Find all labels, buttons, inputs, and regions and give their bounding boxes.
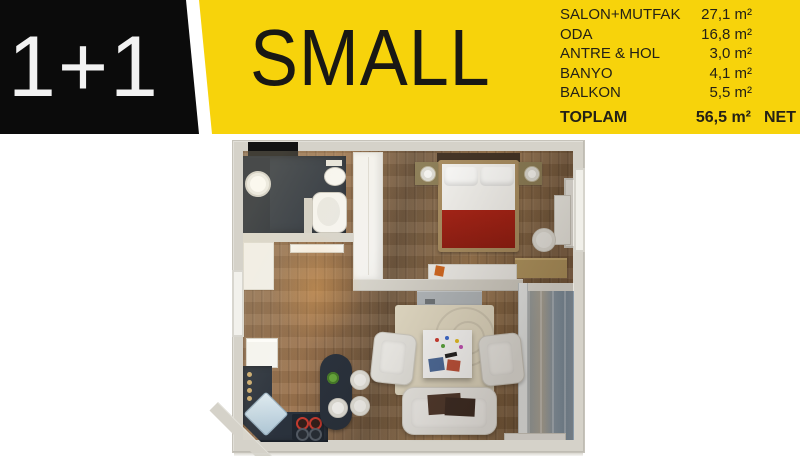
book	[434, 265, 445, 276]
armchair-cushion	[486, 341, 514, 376]
sofa-cushion	[445, 397, 476, 417]
area-value: 27,1 m²	[701, 5, 752, 25]
area-label: ANTRE & HOL	[560, 44, 660, 64]
coffee-table	[423, 330, 472, 378]
toilet-tank	[326, 160, 342, 166]
toilet	[324, 167, 346, 186]
area-label: SALON+MUTFAK	[560, 5, 680, 25]
area-label: ODA	[560, 25, 593, 45]
cabinet-knob	[247, 388, 252, 393]
armchair	[369, 331, 417, 386]
lamp	[524, 166, 540, 182]
area-label: BALKON	[560, 83, 621, 103]
tv-remote	[425, 299, 435, 304]
hall-cabinet	[243, 242, 274, 290]
flyer: 1+1 SMALL SALON+MUTFAK 27,1 m² ODA 16,8 …	[0, 0, 800, 456]
stove	[292, 414, 324, 440]
total-net-suffix: NET	[764, 108, 796, 128]
unit-type-box: 1+1	[0, 0, 210, 134]
armchair-cushion	[378, 340, 406, 375]
bed	[438, 160, 519, 252]
bedroom-side-window	[574, 168, 585, 252]
unit-type-label: 1+1	[0, 24, 160, 110]
bathtub-basin	[317, 197, 340, 226]
stove-burner	[309, 428, 322, 441]
bed-blanket	[442, 210, 515, 248]
bed-mattress	[442, 164, 515, 248]
stove-burner	[296, 428, 309, 441]
total-value: 56,5 m²	[696, 108, 751, 128]
area-table: SALON+MUTFAK 27,1 m² ODA 16,8 m² ANTRE &…	[560, 5, 752, 128]
decor-dot	[455, 339, 459, 343]
area-value: 3,0 m²	[709, 44, 752, 64]
bathroom-wall	[243, 233, 353, 242]
hall-window	[232, 270, 244, 337]
area-row: BANYO 4,1 m²	[560, 64, 752, 84]
area-value: 16,8 m²	[701, 25, 752, 45]
balcony-sill	[523, 283, 574, 291]
sofa	[402, 387, 497, 435]
fridge	[246, 338, 278, 368]
area-row: ANTRE & HOL 3,0 m²	[560, 44, 752, 64]
bathroom-door	[290, 244, 344, 253]
area-label: BANYO	[560, 64, 613, 84]
decor-dot	[435, 338, 439, 342]
decor-dot	[459, 345, 463, 349]
bathtub	[312, 192, 347, 233]
dresser	[515, 258, 567, 278]
cabinet-knob	[247, 380, 252, 385]
bedroom-living-wall	[353, 279, 523, 291]
pillow	[444, 167, 478, 186]
cabinet-knob	[247, 396, 252, 401]
remote-control	[445, 352, 458, 358]
wall-vent	[248, 142, 298, 156]
armchair	[477, 332, 525, 387]
total-row: TOPLAM 56,5 m² NET	[560, 108, 796, 128]
breakfast-bar	[320, 354, 352, 430]
decor-dot	[445, 336, 449, 340]
area-row: BALKON 5,5 m²	[560, 83, 752, 103]
magazine	[428, 357, 445, 372]
wardrobe	[353, 152, 383, 280]
balcony	[528, 291, 574, 440]
living-radiator	[504, 433, 566, 441]
plan-name: SMALL	[250, 18, 491, 98]
nightstand	[519, 162, 542, 185]
area-value: 5,5 m²	[709, 83, 752, 103]
total-label: TOPLAM	[560, 108, 627, 128]
bar-stool	[350, 370, 370, 390]
bathroom-partition-wall	[304, 198, 312, 233]
pillow	[480, 167, 514, 186]
bowl	[328, 398, 348, 418]
bathroom-sink	[245, 171, 271, 197]
bedroom-mirror	[554, 195, 571, 245]
area-row: SALON+MUTFAK 27,1 m²	[560, 5, 752, 25]
floor-plan	[232, 140, 585, 453]
nightstand	[415, 162, 438, 185]
area-row: ODA 16,8 m²	[560, 25, 752, 45]
cabinet-knob	[247, 372, 252, 377]
lamp	[420, 166, 436, 182]
area-value: 4,1 m²	[709, 64, 752, 84]
bar-stool	[350, 396, 370, 416]
bedroom-stool	[532, 228, 556, 252]
decor-dot	[441, 344, 445, 348]
magazine	[446, 359, 460, 372]
plant	[327, 372, 339, 384]
